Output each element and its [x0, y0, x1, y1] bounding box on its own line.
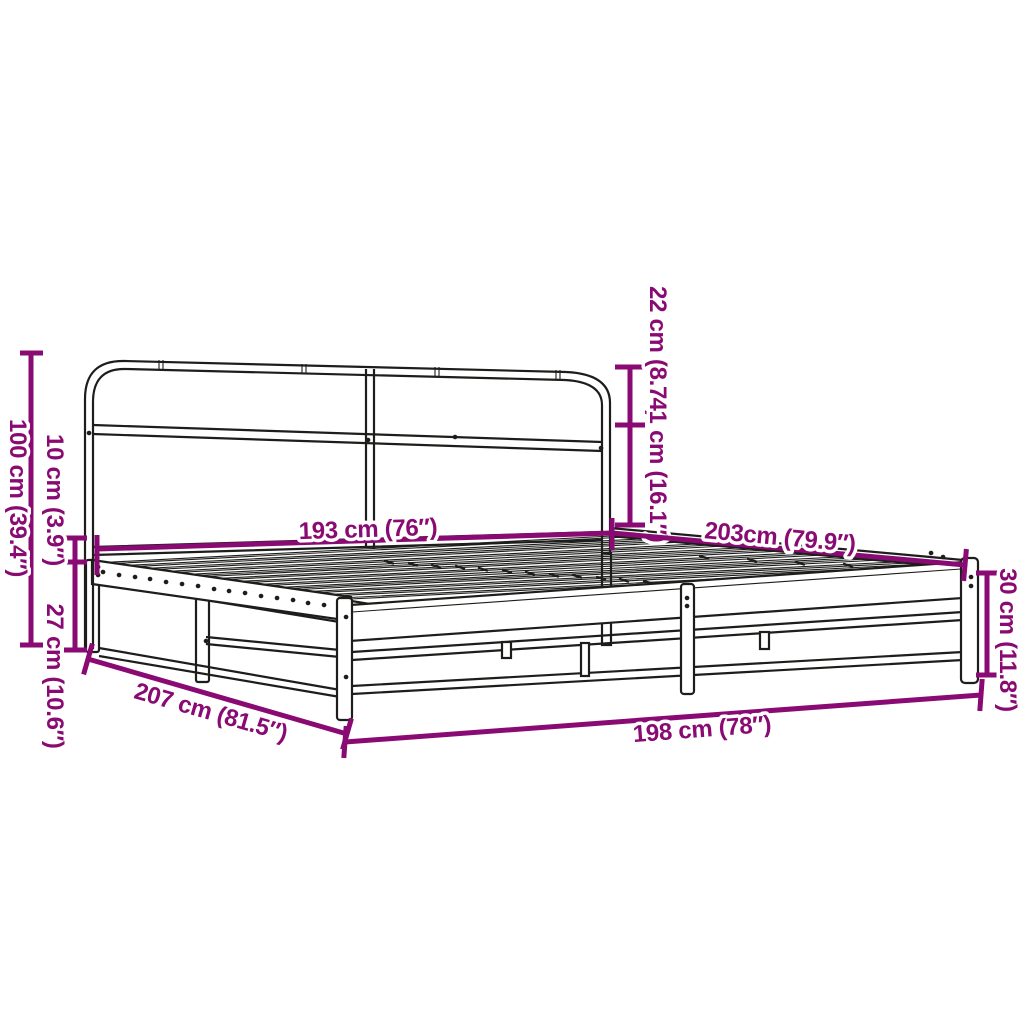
- dimension-label-total-height: 100 cm (39.4″): [4, 419, 31, 577]
- dimension-label-headboard-mid: 41 cm (16.1″): [644, 397, 671, 542]
- product-dimension-diagram: 100 cm (39.4″) 10 cm (3.9″) 27 cm (10.6″…: [0, 0, 1024, 1024]
- dimension-frame-thickness: 10 cm (3.9″) 27 cm (10.6″): [41, 434, 87, 748]
- foot-bottom-tube: [352, 652, 963, 694]
- headboard-cross-rail: [93, 425, 602, 451]
- dimension-label-headboard-width: 193 cm (76″): [298, 514, 437, 545]
- bracket-tab-2: [760, 632, 769, 649]
- dimension-label-side-height: 30 cm (11.8″): [994, 568, 1021, 712]
- bracket-tab-1: [502, 642, 511, 658]
- head-mid-tube: [206, 637, 340, 657]
- dimension-headboard-sections: 22 cm (8.7″) 41 cm (16.1″): [615, 286, 671, 542]
- bed-frame-diagram-svg: 100 cm (39.4″) 10 cm (3.9″) 27 cm (10.6″…: [0, 0, 1024, 1024]
- dimension-total-height: 100 cm (39.4″): [4, 353, 43, 645]
- dimension-label-frame-width: 198 cm (78″): [632, 711, 772, 748]
- center-right-leg: [681, 584, 694, 694]
- dimension-label-frame-thickness: 10 cm (3.9″): [41, 434, 68, 566]
- dimension-label-clearance: 27 cm (10.6″): [41, 603, 68, 748]
- dimension-frame-width: 198 cm (78″): [344, 679, 982, 758]
- dimension-callouts: 100 cm (39.4″) 10 cm (3.9″) 27 cm (10.6″…: [4, 286, 1021, 758]
- support-strut: [581, 643, 589, 676]
- dimension-line: [615, 367, 645, 525]
